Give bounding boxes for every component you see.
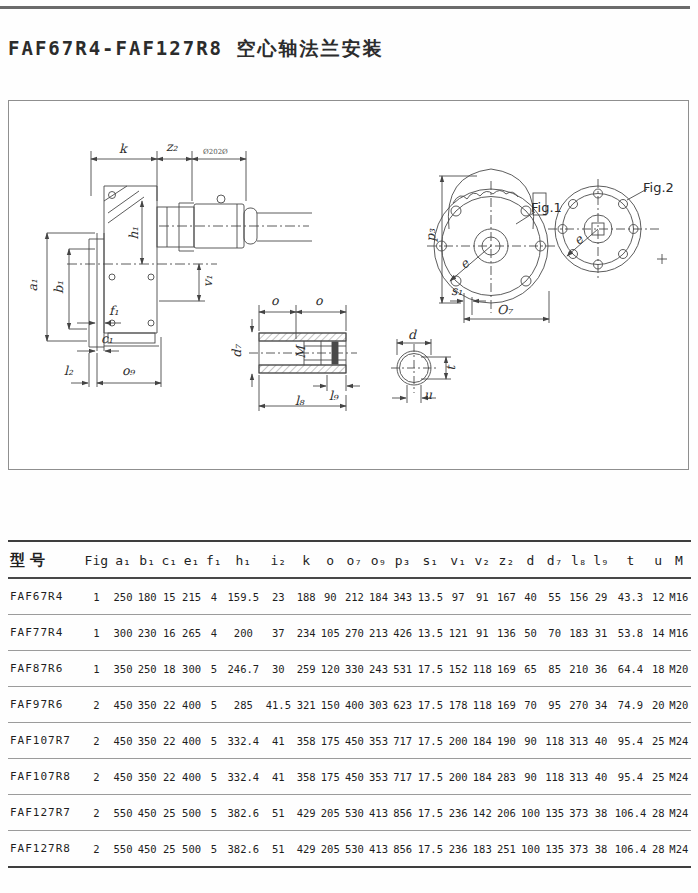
dim-cell: 382.6 [224,831,263,868]
motor-size-label: Ø202Ø [203,149,228,156]
table-row: FAF107R72450350224005332.441358175450353… [8,723,691,759]
dim-label-k: k [119,143,127,156]
dim-cell: 321 [294,687,318,723]
dim-cell: 373 [567,795,591,831]
dim-cell: 97 [446,578,470,615]
dim-cell: 17.5 [415,651,446,687]
dim-cell: 200 [446,759,470,795]
dim-cell: 40 [518,578,542,615]
model-cell: FAF127R7 [8,795,82,831]
header-cell: M [667,541,691,578]
dim-cell: 213 [366,615,390,651]
dim-cell: 530 [342,831,366,868]
dim-cell: 20 [650,687,667,723]
dim-cell: 175 [318,759,342,795]
dim-cell: 22 [159,687,179,723]
dim-cell: 429 [294,795,318,831]
dim-cell: 135 [543,831,567,868]
dim-label-p3: p₃ [425,229,438,242]
dim-cell: 250 [111,578,135,615]
dim-cell: 1 [82,651,111,687]
dim-cell: 205 [318,831,342,868]
table-row: FAF87R61350250183005246.7302591203302435… [8,651,691,687]
dimension-table-wrap: 型号Figa₁b₁c₁e₁f₁h₁i₂koo₇o₉p₃s₁v₁v₂z₂dd₇l₈… [8,540,691,868]
dim-cell: 14 [650,615,667,651]
dim-cell: 17.5 [415,831,446,868]
dim-cell: 180 [135,578,159,615]
dim-cell: 2 [82,687,111,723]
dim-cell: 5 [204,687,224,723]
dim-cell: 373 [567,831,591,868]
dim-cell: 51 [263,831,294,868]
dim-cell: 41 [263,759,294,795]
dim-cell: 450 [342,759,366,795]
dim-cell: 623 [391,687,415,723]
dim-cell: 353 [366,723,390,759]
dim-cell: 353 [366,759,390,795]
dim-cell: 450 [135,795,159,831]
dim-cell: 429 [294,831,318,868]
header-cell: a₁ [111,541,135,578]
dim-cell: 2 [82,759,111,795]
fig1-caption: Fig.1 [531,201,562,214]
dim-cell: 43.3 [611,578,650,615]
dim-cell: 413 [366,831,390,868]
dim-cell: 2 [82,795,111,831]
dim-cell: 184 [366,578,390,615]
dim-cell: 17.5 [415,795,446,831]
fig2-caption: Fig.2 [643,181,674,194]
dim-cell: 5 [204,651,224,687]
dim-cell: 17.5 [415,759,446,795]
dim-cell: 53.8 [611,615,650,651]
dim-cell: 400 [180,687,204,723]
dim-cell: 28 [650,795,667,831]
dim-cell: 300 [180,651,204,687]
dim-cell: 118 [470,687,494,723]
dim-cell: 100 [518,831,542,868]
table-row: FAF97R6245035022400528541.53211504003036… [8,687,691,723]
dim-cell: 91 [470,578,494,615]
dim-label-d: d [408,329,416,342]
header-cell: z₂ [494,541,518,578]
dim-cell: 283 [494,759,518,795]
dim-cell: M24 [667,795,691,831]
dim-cell: 200 [224,615,263,651]
dim-cell: 159.5 [224,578,263,615]
dim-cell: 178 [446,687,470,723]
dim-cell: 34 [591,687,611,723]
header-cell: s₁ [415,541,446,578]
dim-cell: 183 [470,831,494,868]
dim-cell: 350 [135,759,159,795]
dim-cell: 500 [180,795,204,831]
dim-cell: 118 [543,723,567,759]
dim-cell: 25 [159,831,179,868]
dim-cell: 332.4 [224,723,263,759]
dim-cell: 856 [391,831,415,868]
dim-label-b1: b₁ [53,281,66,294]
dim-cell: 500 [180,831,204,868]
dim-cell: 350 [111,651,135,687]
dim-cell: 169 [494,687,518,723]
dim-cell: 230 [135,615,159,651]
dim-cell: 18 [159,651,179,687]
table-row: FAF107R82450350224005332.441358175450353… [8,759,691,795]
dim-cell: 118 [543,759,567,795]
dim-cell: 313 [567,723,591,759]
dim-cell: 38 [591,795,611,831]
dim-cell: 41 [263,723,294,759]
header-cell: i₂ [263,541,294,578]
dim-label-u: u [424,389,432,402]
dim-cell: 156 [567,578,591,615]
dim-cell: 13.5 [415,615,446,651]
dim-cell: 23 [263,578,294,615]
dim-cell: 95 [543,687,567,723]
dim-cell: 400 [180,759,204,795]
dim-cell: 343 [391,578,415,615]
header-cell: b₁ [135,541,159,578]
technical-drawing [9,101,688,469]
model-cell: FAF87R6 [8,651,82,687]
dim-cell: 95.4 [611,759,650,795]
header-cell: l₉ [591,541,611,578]
dim-cell: 358 [294,759,318,795]
dimension-table: 型号Figa₁b₁c₁e₁f₁h₁i₂koo₇o₉p₃s₁v₁v₂z₂dd₇l₈… [8,540,691,868]
dim-label-t: t [445,366,458,371]
dim-cell: M20 [667,687,691,723]
dim-cell: 270 [567,687,591,723]
dim-label-l8: l₈ [295,395,304,408]
dim-cell: 95.4 [611,723,650,759]
dim-cell: 313 [567,759,591,795]
header-cell: k [294,541,318,578]
dim-cell: 206 [494,795,518,831]
header-cell: u [650,541,667,578]
dim-cell: 5 [204,795,224,831]
dim-cell: 5 [204,759,224,795]
header-cell: p₃ [391,541,415,578]
dim-cell: 717 [391,759,415,795]
dim-label-s1: s₁ [451,285,462,298]
dim-cell: 200 [446,723,470,759]
dim-cell: 40 [591,723,611,759]
dim-cell: 1 [82,578,111,615]
header-cell: f₁ [204,541,224,578]
dim-cell: 400 [342,687,366,723]
dim-cell: 70 [543,615,567,651]
dim-cell: 37 [263,615,294,651]
dim-cell: 118 [470,651,494,687]
header-cell: t [611,541,650,578]
dim-cell: 265 [180,615,204,651]
dim-cell: 303 [366,687,390,723]
dim-label-c1: c₁ [101,333,113,346]
dim-cell: 450 [342,723,366,759]
dim-cell: 85 [543,651,567,687]
dim-cell: 183 [567,615,591,651]
dim-cell: 550 [111,795,135,831]
drawing-panel: k z₂ Ø202Ø a₁ b₁ h₁ v₁ f₁ c₁ l₂ o₉ o o d… [8,100,689,470]
dim-label-o7: O₇ [497,304,512,317]
dim-cell: 13.5 [415,578,446,615]
catalog-page: { "title": "FAF67R4-FAF127R8 空心轴法兰安装", "… [0,0,698,893]
dim-cell: 105 [318,615,342,651]
dim-cell: 251 [494,831,518,868]
dim-cell: M24 [667,831,691,868]
dim-cell: 270 [342,615,366,651]
dim-label-o-left: o [271,295,279,308]
dim-label-o9: o₉ [122,365,135,378]
dim-cell: 413 [366,795,390,831]
model-cell: FAF67R4 [8,578,82,615]
dim-cell: M24 [667,723,691,759]
dim-cell: 169 [494,651,518,687]
dim-cell: 5 [204,723,224,759]
dim-cell: 205 [318,795,342,831]
dim-cell: 121 [446,615,470,651]
dim-cell: 300 [111,615,135,651]
header-cell: e₁ [180,541,204,578]
dim-cell: 40 [591,759,611,795]
dim-cell: 285 [224,687,263,723]
dim-cell: 350 [135,723,159,759]
dim-cell: M16 [667,615,691,651]
dim-cell: 246.7 [224,651,263,687]
model-cell: FAF107R8 [8,759,82,795]
dim-label-l9: l₉ [329,390,338,403]
dim-cell: 184 [470,759,494,795]
dim-label-h1: h₁ [128,227,141,240]
dim-cell: 142 [470,795,494,831]
dim-cell: 106.4 [611,795,650,831]
dim-cell: 250 [135,651,159,687]
dim-cell: 106.4 [611,831,650,868]
dim-cell: 215 [180,578,204,615]
table-row: FAF127R82550450255005382.651429205530413… [8,831,691,868]
model-cell: FAF127R8 [8,831,82,868]
dim-cell: 16 [159,615,179,651]
dim-cell: 531 [391,651,415,687]
dim-cell: M20 [667,651,691,687]
dim-cell: 450 [135,831,159,868]
dim-cell: 4 [204,615,224,651]
dim-cell: 243 [366,651,390,687]
header-cell: o [318,541,342,578]
dim-cell: 90 [318,578,342,615]
dim-cell: 29 [591,578,611,615]
dim-cell: 856 [391,795,415,831]
dim-cell: 236 [446,831,470,868]
dim-cell: 90 [518,759,542,795]
dim-label-v1: v₁ [202,275,215,287]
dim-cell: 350 [135,687,159,723]
dim-cell: 18 [650,651,667,687]
dim-cell: 236 [446,795,470,831]
dim-cell: 135 [543,795,567,831]
dim-cell: 2 [82,831,111,868]
dim-cell: 55 [543,578,567,615]
table-body: FAF67R41250180152154159.5231889021218434… [8,578,691,867]
header-cell: v₂ [470,541,494,578]
dim-cell: 167 [494,578,518,615]
dim-cell: 450 [111,687,135,723]
dim-cell: 30 [263,651,294,687]
dim-cell: 22 [159,723,179,759]
dim-cell: 212 [342,578,366,615]
table-row: FAF67R41250180152154159.5231889021218434… [8,578,691,615]
header-cell-model: 型号 [8,541,82,578]
dim-cell: 38 [591,831,611,868]
dim-cell: 5 [204,831,224,868]
table-row: FAF77R4130023016265420037234105270213426… [8,615,691,651]
dim-label-m: M [295,346,308,359]
dim-label-z2: z₂ [166,141,178,154]
dim-cell: 400 [180,723,204,759]
dim-cell: 259 [294,651,318,687]
model-cell: FAF97R6 [8,687,82,723]
dim-cell: 550 [111,831,135,868]
dim-cell: 31 [591,615,611,651]
dim-cell: 190 [494,723,518,759]
dim-cell: 184 [470,723,494,759]
header-cell: h₁ [224,541,263,578]
header-cell: c₁ [159,541,179,578]
dim-cell: 100 [518,795,542,831]
header-cell: Fig [82,541,111,578]
dim-cell: 210 [567,651,591,687]
dim-cell: 17.5 [415,723,446,759]
dim-cell: 65 [518,651,542,687]
dim-cell: 90 [518,723,542,759]
dim-label-o-right: o [315,295,323,308]
dim-cell: 70 [518,687,542,723]
dim-cell: 51 [263,795,294,831]
dim-cell: 15 [159,578,179,615]
dim-cell: 17.5 [415,687,446,723]
dim-cell: 50 [518,615,542,651]
dim-cell: 450 [111,759,135,795]
header-cell: o₇ [342,541,366,578]
dim-label-a1: a₁ [27,279,40,291]
header-cell: o₉ [366,541,390,578]
dim-cell: 12 [650,578,667,615]
table-row: FAF127R72550450255005382.651429205530413… [8,795,691,831]
table-header-row: 型号Figa₁b₁c₁e₁f₁h₁i₂koo₇o₉p₃s₁v₁v₂z₂dd₇l₈… [8,541,691,578]
dim-cell: 358 [294,723,318,759]
dim-cell: 330 [342,651,366,687]
dim-cell: 41.5 [263,687,294,723]
dim-cell: 450 [111,723,135,759]
table-head: 型号Figa₁b₁c₁e₁f₁h₁i₂koo₇o₉p₃s₁v₁v₂z₂dd₇l₈… [8,541,691,578]
dim-cell: M24 [667,759,691,795]
dim-cell: 426 [391,615,415,651]
dim-cell: 91 [470,615,494,651]
header-cell: v₁ [446,541,470,578]
dim-cell: 28 [650,831,667,868]
dim-cell: 530 [342,795,366,831]
header-cell: l₈ [567,541,591,578]
dim-cell: 175 [318,723,342,759]
dim-cell: 120 [318,651,342,687]
dim-cell: 234 [294,615,318,651]
dim-cell: 74.9 [611,687,650,723]
dim-label-f1: f₁ [109,305,119,318]
dim-cell: 382.6 [224,795,263,831]
dim-cell: 152 [446,651,470,687]
dim-label-l2: l₂ [64,365,73,378]
dim-cell: 1 [82,615,111,651]
dim-cell: 717 [391,723,415,759]
dim-cell: 25 [159,795,179,831]
dim-cell: M16 [667,578,691,615]
page-title: FAF67R4-FAF127R8 空心轴法兰安装 [8,36,383,62]
dim-cell: 22 [159,759,179,795]
model-cell: FAF77R4 [8,615,82,651]
header-cell: d [518,541,542,578]
header-cell: d₇ [543,541,567,578]
dim-label-d7: d₇ [231,345,244,358]
dim-cell: 150 [318,687,342,723]
dim-cell: 332.4 [224,759,263,795]
model-cell: FAF107R7 [8,723,82,759]
dim-cell: 25 [650,759,667,795]
dim-cell: 136 [494,615,518,651]
dim-cell: 4 [204,578,224,615]
top-rule [0,6,690,9]
dim-cell: 188 [294,578,318,615]
dim-cell: 36 [591,651,611,687]
dim-cell: 25 [650,723,667,759]
dim-cell: 64.4 [611,651,650,687]
dim-cell: 2 [82,723,111,759]
